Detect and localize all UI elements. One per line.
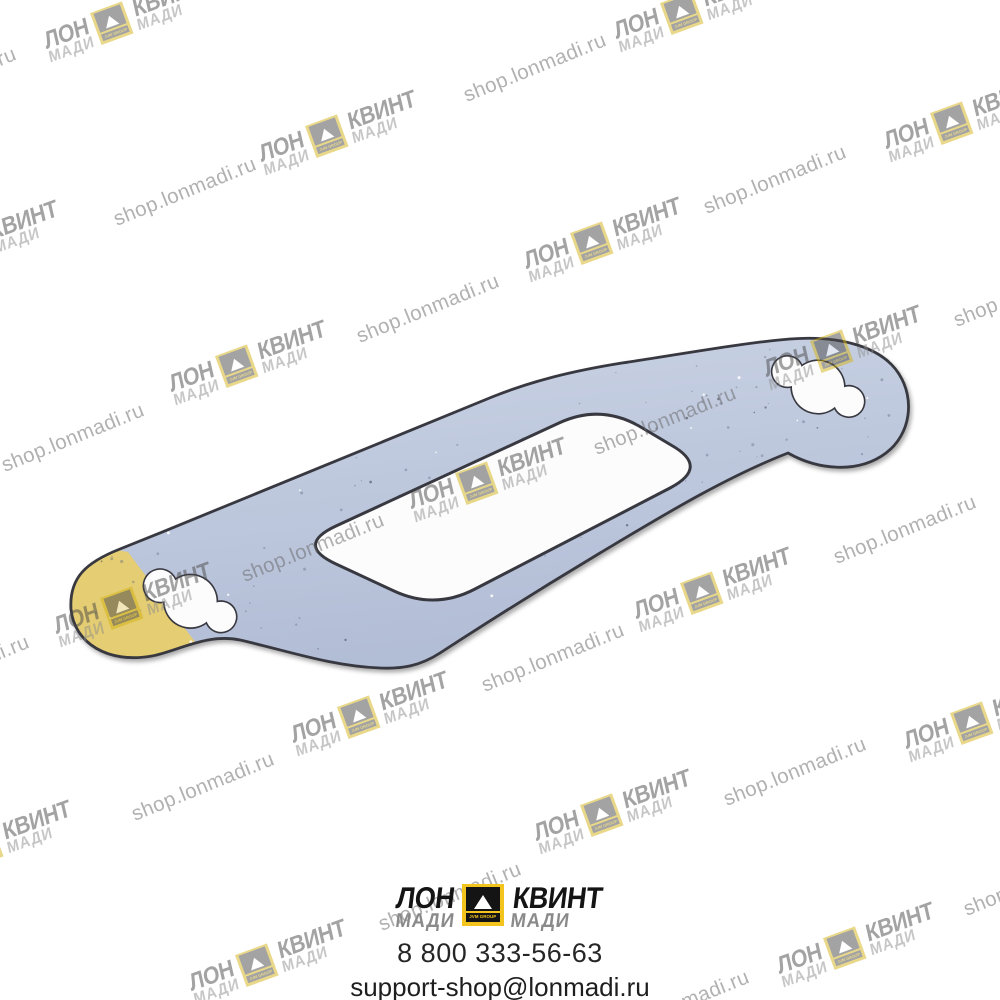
watermark-text: shop.lonmadi.ru: [353, 269, 503, 348]
lonmadi-logo: ЛОНJVM GROUPКВИНТМАДИМАДИ: [0, 196, 70, 290]
watermark-text: shop.lonmadi.ru: [128, 747, 278, 826]
triangle-icon: [962, 710, 980, 728]
watermark-text: shop.lonmadi.ru: [700, 140, 850, 219]
logo-word-madi-right: МАДИ: [706, 0, 755, 24]
jvm-group-logo-icon: JVM GROUP: [337, 695, 381, 739]
logo-word-madi-left: МАДИ: [395, 911, 457, 931]
lonmadi-logo: ЛОНJVM GROUPКВИНТМАДИМАДИ: [0, 796, 83, 890]
lonmadi-logo: ЛОНJVM GROUPКВИНТМАДИМАДИ: [627, 543, 802, 637]
jvm-group-logo-icon: JVM GROUP: [215, 344, 259, 388]
triangle-icon: [942, 110, 960, 128]
footer-phone: 8 800 333-56-63: [397, 938, 603, 969]
jvm-group-logo-icon: JVM GROUP: [580, 793, 624, 837]
logo-icon-frame: [466, 887, 500, 911]
watermark-text: shop.lonmadi.ru: [590, 381, 740, 460]
watermark-text: shop.lonmadi.ru: [720, 732, 870, 811]
triangle-icon: [227, 353, 245, 371]
triangle-icon: [672, 0, 690, 18]
watermark-text: shop.lonmadi.ru: [478, 618, 628, 697]
triangle-icon: [112, 595, 130, 613]
jvm-group-logo-icon: JVM GROUP: [305, 114, 349, 158]
lonmadi-logo: ЛОНJVM GROUPКВИНТМАДИМАДИ: [402, 433, 577, 527]
watermark-text: shop.lonmadi.ru: [950, 253, 1000, 332]
jvm-group-logo-icon: JVM GROUP: [462, 884, 504, 926]
footer-email: support-shop@lonmadi.ru: [350, 972, 650, 1000]
jvm-group-logo-icon: JVM GROUP: [930, 101, 974, 145]
watermark-text: shop.lonmadi.ru: [0, 398, 148, 477]
jvm-group-logo-icon: JVM GROUP: [90, 1, 134, 45]
watermark-text: shop.lonmadi.ru: [110, 152, 260, 231]
lonmadi-logo: ЛОНJVM GROUPКВИНТМАДИМАДИ: [877, 73, 1000, 167]
lonmadi-logo: ЛОНJVM GROUPКВИНТМАДИМАДИ: [162, 316, 337, 410]
product-photo-canvas: shop.lonmadi.rushop.lonmadi.rushop.lonma…: [0, 0, 1000, 1000]
jvm-group-logo-icon: JVM GROUP: [810, 329, 854, 373]
lonmadi-logo: ЛОНJVM GROUPКВИНТМАДИМАДИ: [284, 667, 459, 761]
footer-logo-slot: ЛОНJVM GROUPКВИНТМАДИМАДИ: [393, 884, 607, 931]
watermark-text: shop.lonmadi.ru: [830, 490, 980, 569]
logo-icon-label: JVM GROUP: [466, 913, 500, 922]
triangle-icon: [474, 892, 492, 909]
lonmadi-logo: ЛОНJVM GROUPКВИНТМАДИМАДИ: [607, 0, 782, 57]
jvm-group-logo-icon: JVM GROUP: [455, 461, 499, 505]
triangle-icon: [822, 338, 840, 356]
jvm-group-logo-icon: JVM GROUP: [950, 701, 994, 745]
triangle-icon: [349, 704, 367, 722]
lonmadi-logo: ЛОНJVM GROUPКВИНТМАДИМАДИ: [527, 765, 702, 859]
triangle-icon: [582, 230, 600, 248]
watermark-text: shop.lonmadi.ru: [238, 508, 388, 587]
watermark-text: shop.lonmadi.ru: [0, 42, 20, 121]
jvm-group-logo-icon: JVM GROUP: [680, 571, 724, 615]
lonmadi-logo: ЛОНJVM GROUPКВИНТМАДИМАДИ: [897, 673, 1000, 767]
triangle-icon: [467, 470, 485, 488]
lonmadi-logo: ЛОНJVM GROUPКВИНТМАДИМАДИ: [517, 193, 692, 287]
triangle-icon: [592, 802, 610, 820]
triangle-icon: [317, 123, 335, 141]
lonmadi-logo: ЛОНJVM GROUPКВИНТМАДИМАДИ: [393, 884, 607, 931]
lonmadi-logo: ЛОНJVM GROUPКВИНТМАДИМАДИ: [37, 0, 212, 67]
lonmadi-logo: ЛОНJVM GROUPКВИНТМАДИМАДИ: [757, 301, 932, 395]
lonmadi-logo: ЛОНJVM GROUPКВИНТМАДИМАДИ: [47, 558, 222, 652]
logo-word-madi-right: МАДИ: [509, 911, 571, 931]
footer-branding: ЛОНJVM GROUPКВИНТМАДИМАДИ 8 800 333-56-6…: [0, 884, 1000, 1000]
watermark-layer: shop.lonmadi.rushop.lonmadi.rushop.lonma…: [0, 0, 1000, 1000]
triangle-icon: [692, 580, 710, 598]
lonmadi-logo: ЛОНJVM GROUPКВИНТМАДИМАДИ: [252, 86, 427, 180]
watermark-text: shop.lonmadi.ru: [0, 630, 33, 709]
jvm-group-logo-icon: JVM GROUP: [660, 0, 704, 35]
jvm-group-logo-icon: JVM GROUP: [100, 586, 144, 630]
triangle-icon: [102, 10, 120, 28]
logo-word-kvint: КВИНТ: [991, 674, 1000, 722]
watermark-text: shop.lonmadi.ru: [460, 28, 610, 107]
jvm-group-logo-icon: JVM GROUP: [570, 221, 614, 265]
